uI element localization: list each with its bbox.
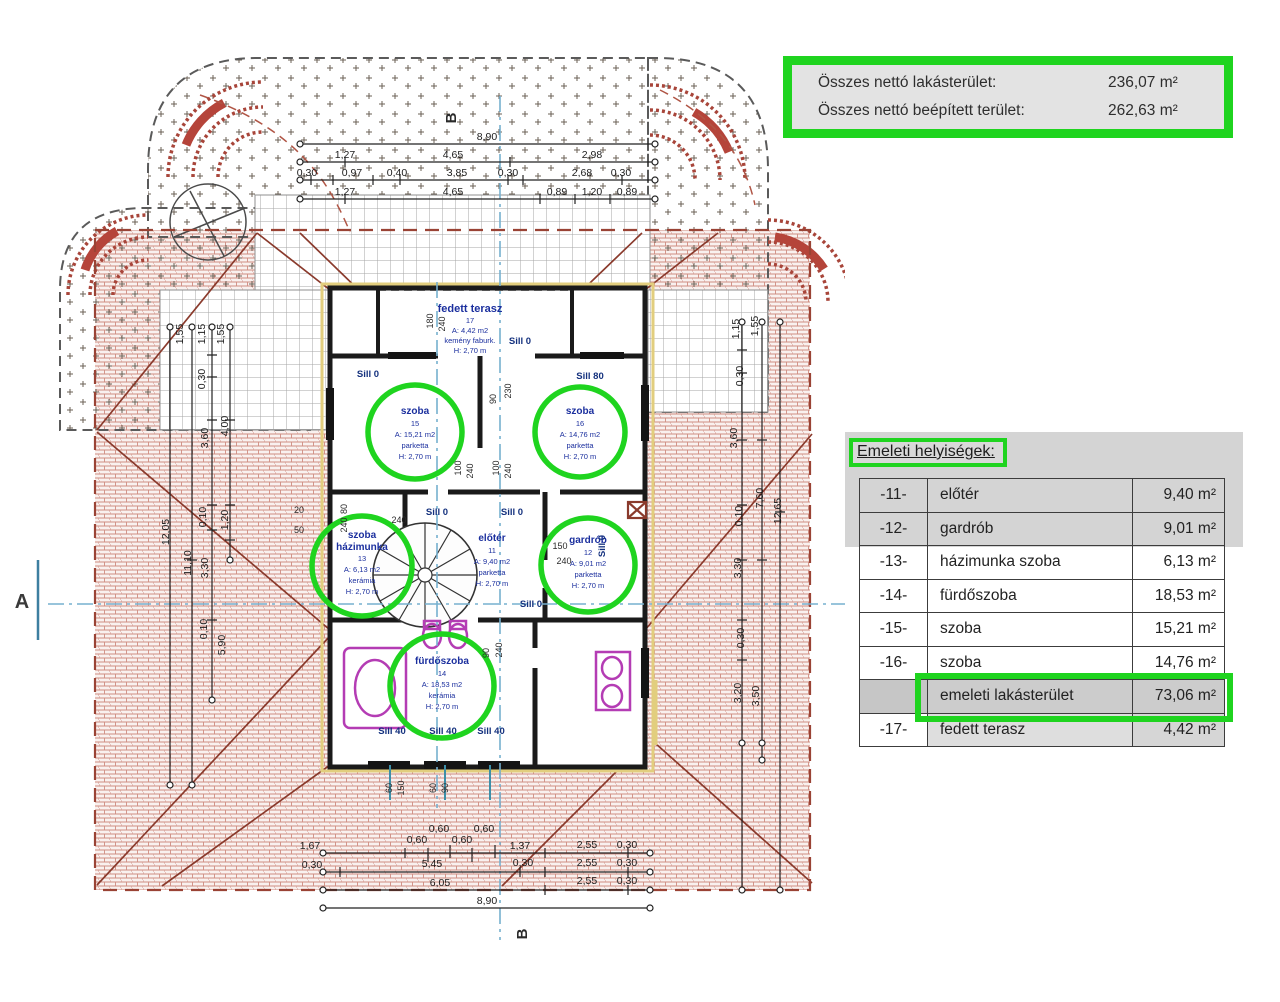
summary-value: 236,07 m² <box>1108 74 1218 92</box>
sill-label: Sill 0 <box>501 507 523 518</box>
table-cell-code: -15- <box>860 613 928 646</box>
exterior-walls <box>330 288 645 767</box>
window-dim: 80 <box>339 504 349 514</box>
section-marker-b-top: B <box>443 112 460 123</box>
window-right-low <box>641 648 649 698</box>
dim-label: 0,60 <box>429 823 450 835</box>
window-top-1 <box>388 352 436 359</box>
table-row: -14- fürdőszoba 18,53 m² <box>860 580 1224 614</box>
window-dim: 90 <box>488 394 498 404</box>
table-cell-value: 6,13 m² <box>1133 546 1224 579</box>
window-dim: 240 <box>503 463 513 478</box>
room-label: parketta <box>401 441 429 450</box>
window-dim: 240 <box>465 463 475 478</box>
room-label: H: 2,70 m <box>346 587 379 596</box>
dim-label: 0,30 <box>302 859 323 871</box>
dim-label: 2,55 <box>577 839 598 851</box>
summary-label: Összes nettó beépített terület: <box>818 102 1108 120</box>
dim-label: 0,60 <box>407 834 428 846</box>
table-row: -16- szoba 14,76 m² <box>860 647 1224 681</box>
dim-label: 1,37 <box>510 840 531 852</box>
window-dim: 90 <box>440 783 450 793</box>
table-row: -15- szoba 15,21 m² <box>860 613 1224 647</box>
window-dim: 60 <box>384 783 394 793</box>
table-cell-value: 4,42 m² <box>1133 714 1224 747</box>
table-cell-code: -11- <box>860 479 928 512</box>
dim-label: 0,30 <box>617 839 638 851</box>
grid-right <box>648 290 768 412</box>
window-dim: 50 <box>294 525 304 535</box>
summary-label: Összes nettó lakásterület: <box>818 74 1108 92</box>
sill-label: Sill 0 <box>509 336 531 347</box>
sill-label: Sill 40 <box>429 726 456 737</box>
dim-label: 0,30 <box>297 167 318 179</box>
dim-label: 0,10 <box>197 507 209 528</box>
room-label: H: 2,70 m <box>564 452 597 461</box>
room-label: 13 <box>358 554 366 563</box>
sill-label: Sill 40 <box>378 726 405 737</box>
room-label: kerámia <box>429 691 457 700</box>
table-cell-code: -17- <box>860 714 928 747</box>
table-cell-name: gardrób <box>928 513 1133 546</box>
dim-label: 7,60 <box>754 488 766 509</box>
dim-label: 12,65 <box>772 498 784 524</box>
table-cell-name: emeleti lakásterület <box>928 680 1133 713</box>
dim-label: 0,60 <box>452 834 473 846</box>
window-dim: 100 <box>491 460 501 475</box>
dim-label: 0,30 <box>734 366 746 387</box>
room-label: 11 <box>488 546 496 555</box>
table-cell-name: előtér <box>928 479 1133 512</box>
sill-label: Sill 0 <box>597 535 608 557</box>
sill-label: Sill 80 <box>576 371 603 382</box>
room-label: A: 15,21 m2 <box>395 430 435 439</box>
room-label-hazimunka: szoba <box>348 530 377 541</box>
summary-value: 262,63 m² <box>1108 102 1218 120</box>
table-cell-value: 18,53 m² <box>1133 580 1224 613</box>
table-cell-value: 14,76 m² <box>1133 647 1224 680</box>
dim-label: 0,30 <box>513 857 534 869</box>
dim-label: 1,27 <box>335 149 356 161</box>
window-dim: 240 <box>391 515 406 525</box>
window-dim: 60 <box>428 783 438 793</box>
dim-label: 1,27 <box>335 186 356 198</box>
dim-label: 5,45 <box>422 858 443 870</box>
dim-label: 3,50 <box>750 686 762 707</box>
dim-label: 1,55 <box>215 324 227 345</box>
room-label-furdoszoba: fürdőszoba <box>415 656 469 667</box>
dim-label: 1,67 <box>300 840 321 852</box>
room-label: A: 9,01 m2 <box>570 559 606 568</box>
dim-label: 1,55 <box>174 324 186 345</box>
floorplan-page: fedett terasz 17 A: 4,42 m2 kemény fabur… <box>0 0 1280 1002</box>
dim-label: 3,60 <box>199 428 211 449</box>
table-cell-name: szoba <box>928 647 1133 680</box>
sill-label: Sill 0 <box>520 599 542 610</box>
dim-label: 0,30 <box>735 628 747 649</box>
room-label: házimunka <box>336 542 388 553</box>
dim-label: 3,30 <box>199 558 211 579</box>
chimney <box>628 502 646 518</box>
dim-label: 2,55 <box>577 875 598 887</box>
room-label: 14 <box>438 669 446 678</box>
window-dim: 150 <box>552 541 567 551</box>
dim-label: 4,65 <box>443 149 464 161</box>
table-cell-name: fürdőszoba <box>928 580 1133 613</box>
room-label: kerámia <box>349 576 377 585</box>
grid-left <box>160 290 330 430</box>
sill-label: Sill 0 <box>426 507 448 518</box>
room-label: H: 2,70 m <box>426 702 459 711</box>
dim-label: 1,15 <box>196 324 208 345</box>
dim-label: 1,20 <box>219 510 231 531</box>
sill-label: Sill 40 <box>477 726 504 737</box>
dim-label: 0,89 <box>547 186 568 198</box>
room-label: kemény faburk. <box>444 336 495 345</box>
table-row: -17- fedett terasz 4,42 m² <box>860 714 1224 747</box>
dim-label: 0,30 <box>196 369 208 390</box>
summary-row: Összes nettó lakásterület: 236,07 m² <box>792 74 1224 92</box>
table-cell-value: 73,06 m² <box>1133 680 1224 713</box>
table-cell-name: házimunka szoba <box>928 546 1133 579</box>
dim-label: 8,90 <box>477 131 498 143</box>
dim-label: 0,10 <box>733 506 745 527</box>
dim-label: 2,98 <box>582 149 603 161</box>
dim-label: 2,55 <box>577 857 598 869</box>
table-cell-name: fedett terasz <box>928 714 1133 747</box>
window-dim: 240 <box>437 316 447 331</box>
floorplan-drawing: fedett terasz 17 A: 4,42 m2 kemény fabur… <box>0 0 845 1002</box>
room-label: H: 2,70 m <box>572 581 605 590</box>
dim-label: 5,90 <box>216 635 228 656</box>
net-area-summary: Összes nettó lakásterület: 236,07 m² Öss… <box>792 65 1224 129</box>
room-label: parketta <box>566 441 594 450</box>
window-dim: 180 <box>425 313 435 328</box>
dim-label: 11,10 <box>182 550 194 576</box>
dim-label: 2,68 <box>572 167 593 179</box>
room-label: A: 18,53 m2 <box>422 680 462 689</box>
dim-label: 4,65 <box>443 186 464 198</box>
table-row: -12- gardrób 9,01 m² <box>860 513 1224 547</box>
room-label: parketta <box>478 568 506 577</box>
dim-label: 0,10 <box>198 619 210 640</box>
grid-top <box>255 195 650 290</box>
room-label: 16 <box>576 419 584 428</box>
room-label: A: 9,40 m2 <box>474 557 510 566</box>
room-label: A: 6,13 m2 <box>344 565 380 574</box>
window-dim: 150 <box>396 780 406 795</box>
table-cell-code <box>860 680 928 713</box>
table-cell-code: -14- <box>860 580 928 613</box>
room-label: A: 14,76 m2 <box>560 430 600 439</box>
room-label: parketta <box>574 570 602 579</box>
room-label-szoba16: szoba <box>566 406 595 417</box>
window-dim: 240 <box>494 642 504 657</box>
dim-label: 3,30 <box>732 558 744 579</box>
window-right-top <box>641 385 649 441</box>
window-dim: 100 <box>453 460 463 475</box>
room-label-szoba15: szoba <box>401 406 430 417</box>
window-dim: 90 <box>481 648 491 658</box>
dim-label: 6,05 <box>430 877 451 889</box>
dim-label: 0,30 <box>498 167 519 179</box>
dim-label: 0,40 <box>387 167 408 179</box>
rooms-table-title-box: Emeleti helyiségek: <box>849 438 1007 467</box>
net-area-summary-box: Összes nettó lakásterület: 236,07 m² Öss… <box>783 56 1233 138</box>
dim-label: 3,85 <box>447 167 468 179</box>
dim-label: 1,55 <box>749 316 761 337</box>
dim-label: 0,89 <box>617 186 638 198</box>
section-marker-a: A <box>15 591 29 613</box>
table-row-sum: emeleti lakásterület 73,06 m² <box>860 680 1224 714</box>
dim-label: 0,30 <box>617 875 638 887</box>
dim-label: 8,90 <box>477 895 498 907</box>
window-bottom-3 <box>478 761 520 769</box>
dim-label: 1,20 <box>582 186 603 198</box>
table-cell-value: 15,21 m² <box>1133 613 1224 646</box>
dim-label: 0,60 <box>474 823 495 835</box>
window-dim: 230 <box>503 383 513 398</box>
rooms-table-title: Emeleti helyiségek: <box>853 442 1003 463</box>
room-label-terasz: fedett terasz <box>438 303 503 315</box>
sill-label: Sill 0 <box>357 369 379 380</box>
table-cell-value: 9,40 m² <box>1133 479 1224 512</box>
table-cell-code: -16- <box>860 647 928 680</box>
room-label: 17 <box>466 316 474 325</box>
table-cell-code: -13- <box>860 546 928 579</box>
dim-label: 0,30 <box>611 167 632 179</box>
dim-label: 0,97 <box>342 167 363 179</box>
window-dim: 240 <box>339 517 349 532</box>
dim-label: 12,05 <box>160 519 172 545</box>
rooms-table: -11- előtér 9,40 m² -12- gardrób 9,01 m²… <box>859 478 1225 747</box>
dim-label: 4,00 <box>219 416 231 437</box>
dim-label: 1,15 <box>730 319 742 340</box>
window-dim: 20 <box>294 505 304 515</box>
dim-label: 3,60 <box>728 428 740 449</box>
room-label: 15 <box>411 419 419 428</box>
room-label: H: 2,70 m <box>454 346 487 355</box>
window-left <box>326 388 334 440</box>
table-cell-value: 9,01 m² <box>1133 513 1224 546</box>
table-cell-code: -12- <box>860 513 928 546</box>
section-marker-b-bottom: B <box>514 928 531 939</box>
dim-label: 3,20 <box>732 683 744 704</box>
summary-row: Összes nettó beépített terület: 262,63 m… <box>792 102 1224 120</box>
room-label: 12 <box>584 548 592 557</box>
window-dim: 240 <box>556 556 571 566</box>
table-row: -13- házimunka szoba 6,13 m² <box>860 546 1224 580</box>
table-row: -11- előtér 9,40 m² <box>860 479 1224 513</box>
room-label: A: 4,42 m2 <box>452 326 488 335</box>
table-cell-name: szoba <box>928 613 1133 646</box>
room-label: H: 2,70 m <box>399 452 432 461</box>
dim-label: 0,30 <box>617 857 638 869</box>
window-top-2 <box>580 352 624 359</box>
room-label: H: 2,70 m <box>476 579 509 588</box>
room-label-eloter: előtér <box>478 533 505 544</box>
